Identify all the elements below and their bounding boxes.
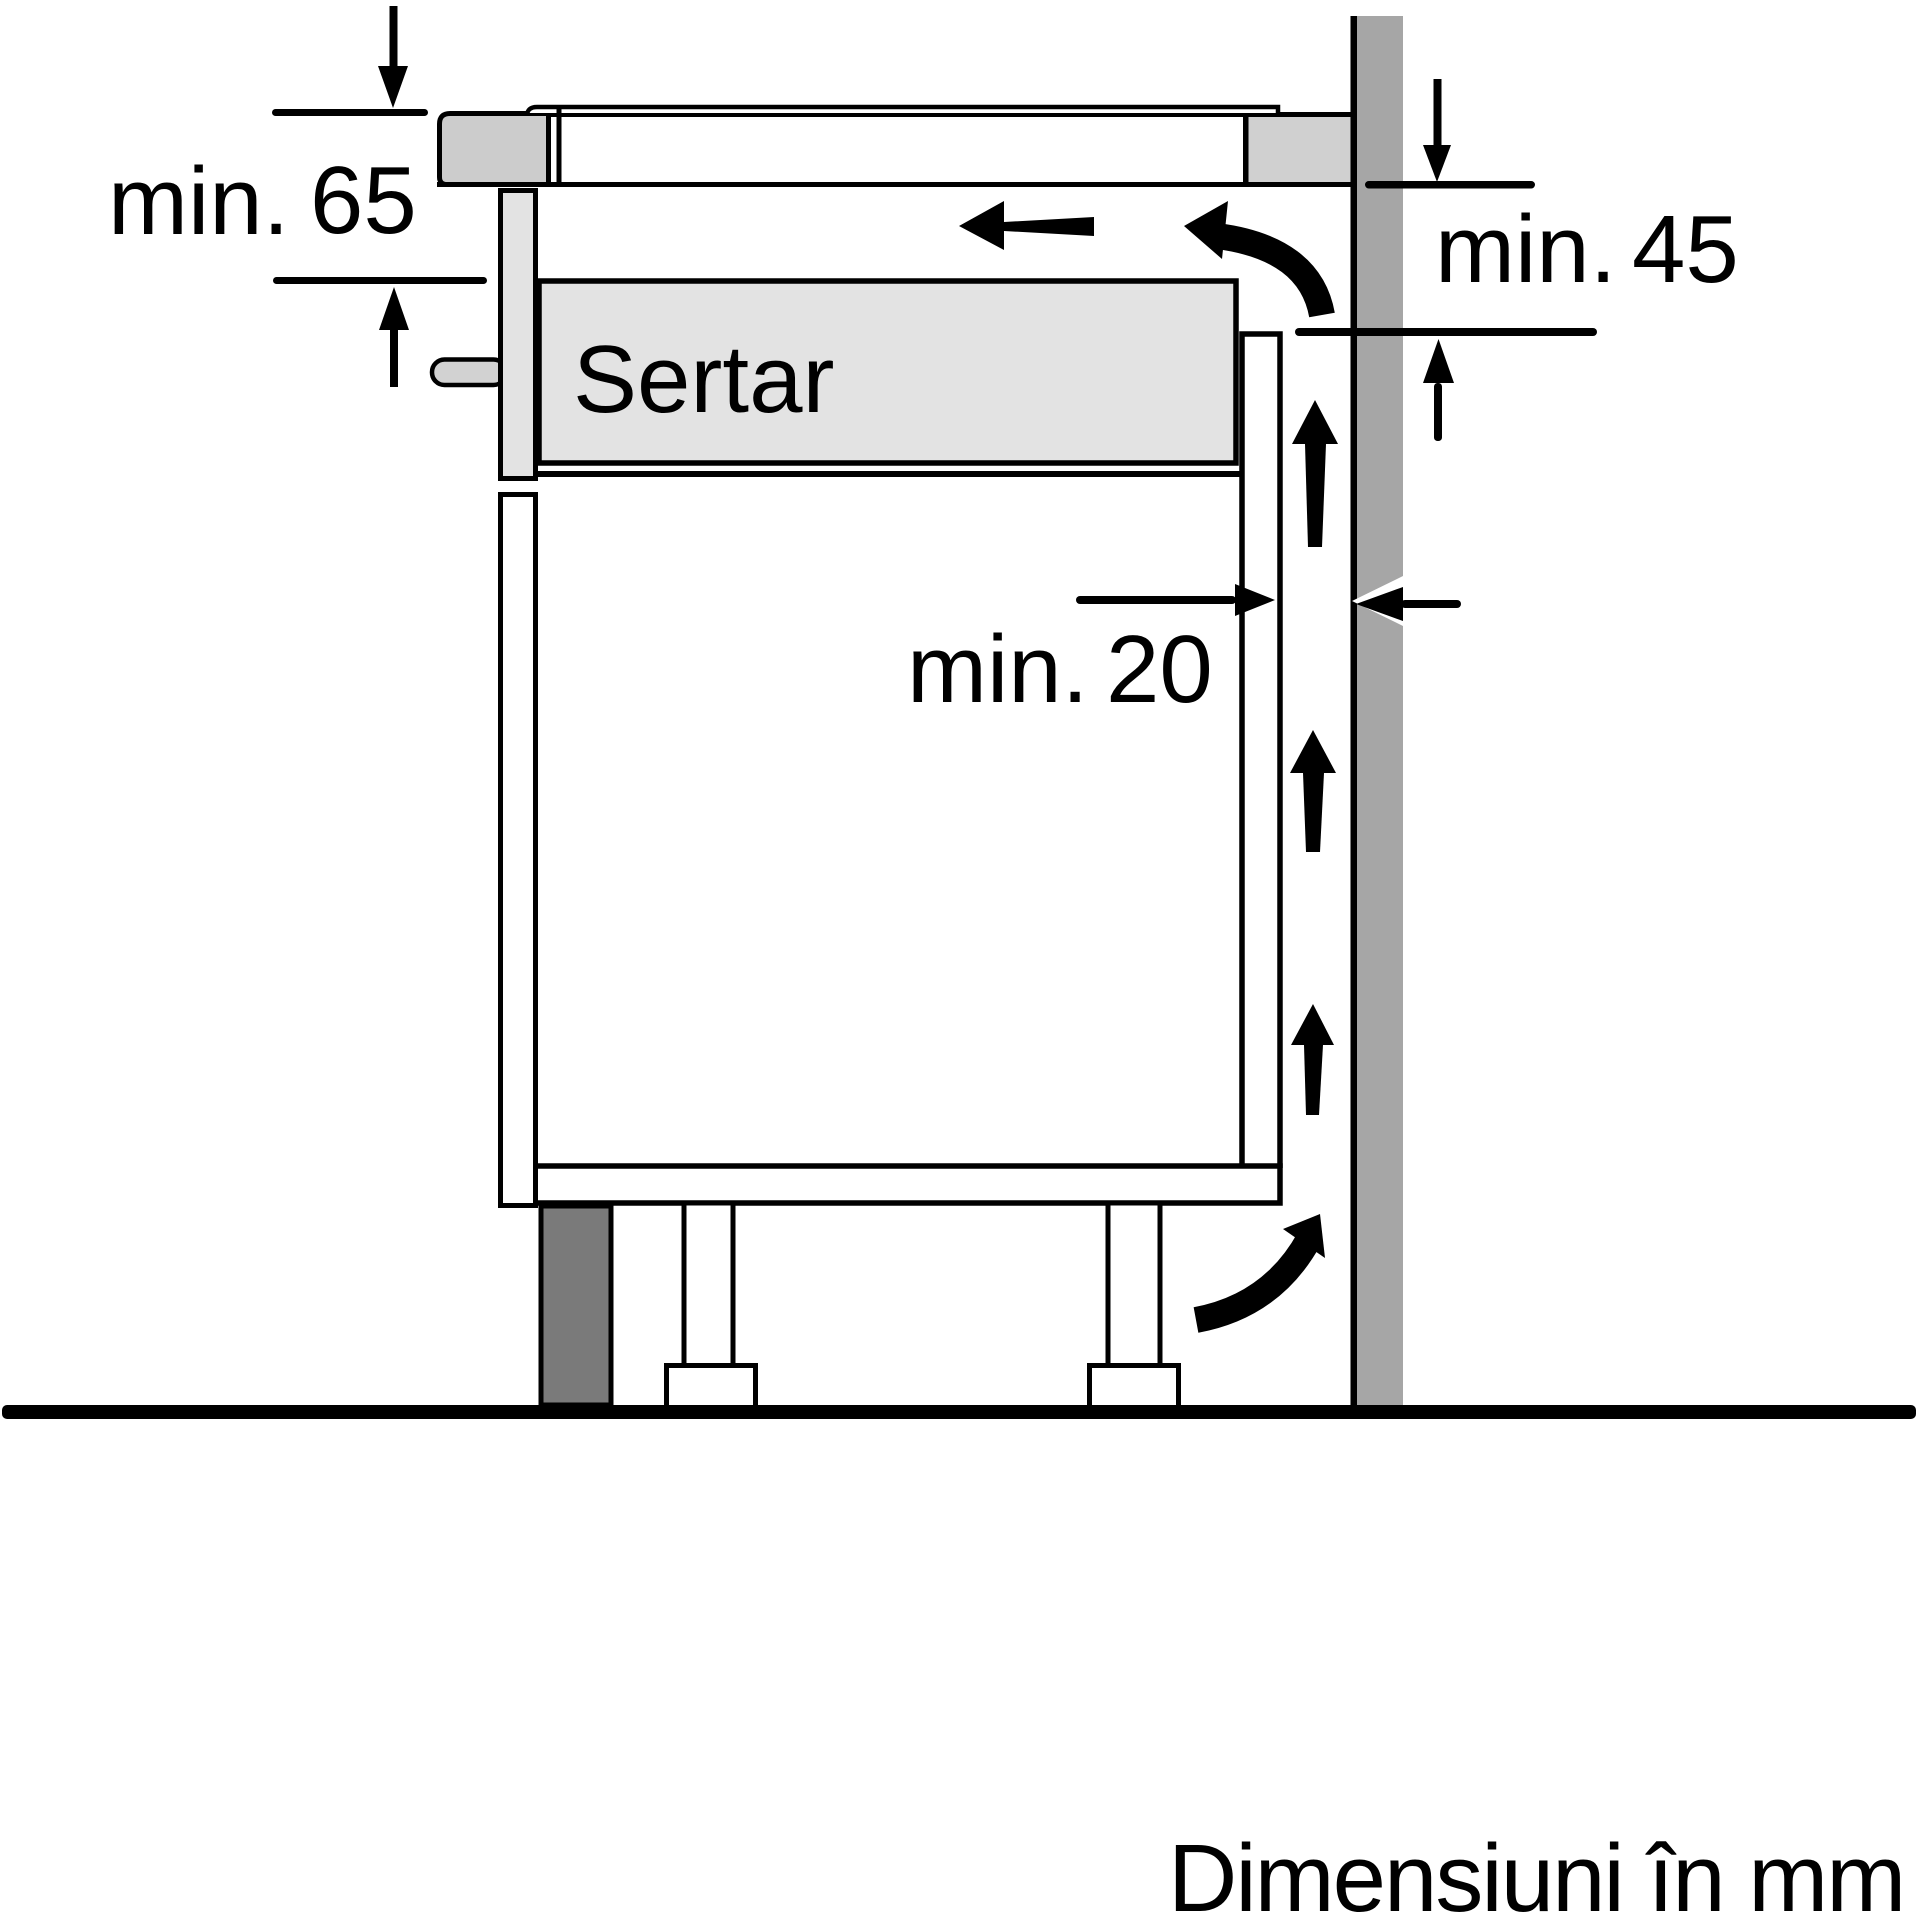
svg-text:20: 20 [1106, 616, 1213, 723]
svg-text:Sertar: Sertar [573, 326, 834, 433]
svg-text:Dimensiuni în mm: Dimensiuni în mm [1168, 1825, 1904, 1920]
svg-text:min.: min. [1435, 196, 1616, 303]
svg-text:min.: min. [108, 148, 289, 255]
svg-text:45: 45 [1632, 196, 1739, 303]
svg-text:65: 65 [310, 147, 417, 254]
svg-text:min.: min. [907, 616, 1088, 723]
